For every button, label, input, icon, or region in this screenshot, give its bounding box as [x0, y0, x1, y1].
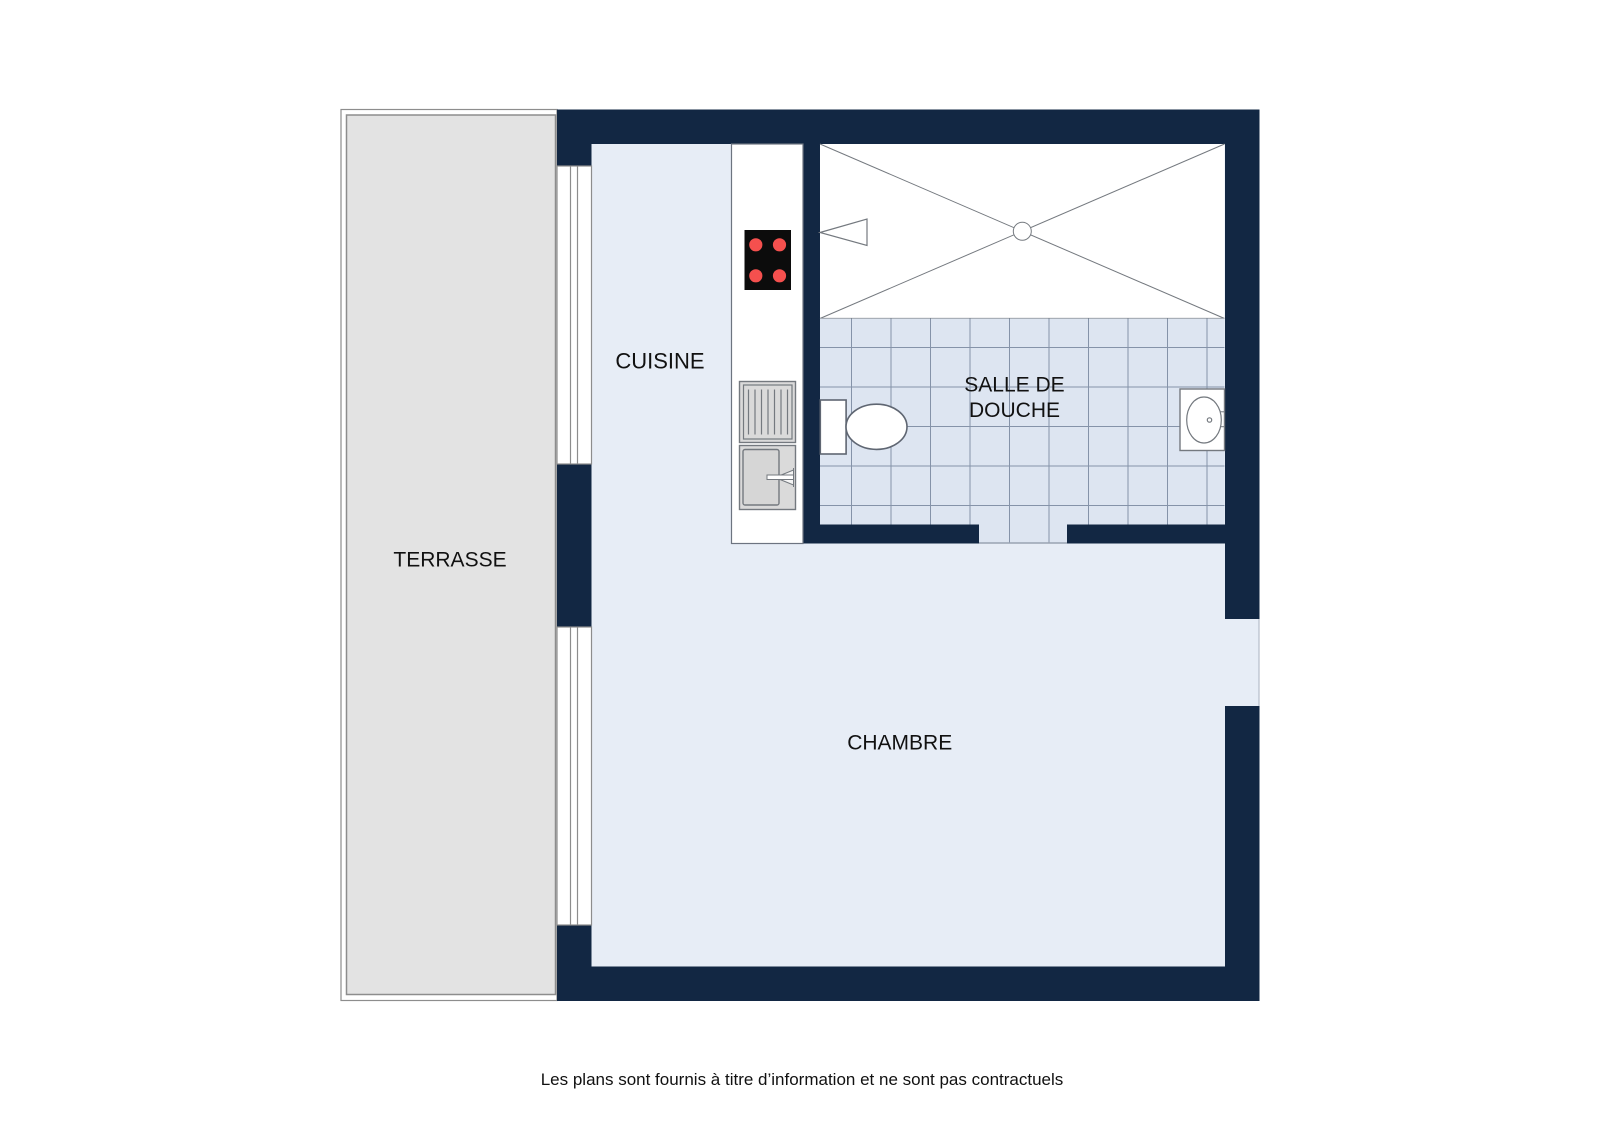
- svg-text:CHAMBRE: CHAMBRE: [847, 732, 952, 755]
- svg-text:Les plans sont fournis à titre: Les plans sont fournis à titre d’informa…: [541, 1070, 1064, 1089]
- svg-text:TERRASSE: TERRASSE: [393, 549, 506, 572]
- svg-text:CUISINE: CUISINE: [615, 349, 704, 374]
- svg-text:SALLE DE: SALLE DE: [964, 374, 1064, 397]
- svg-text:DOUCHE: DOUCHE: [969, 399, 1060, 422]
